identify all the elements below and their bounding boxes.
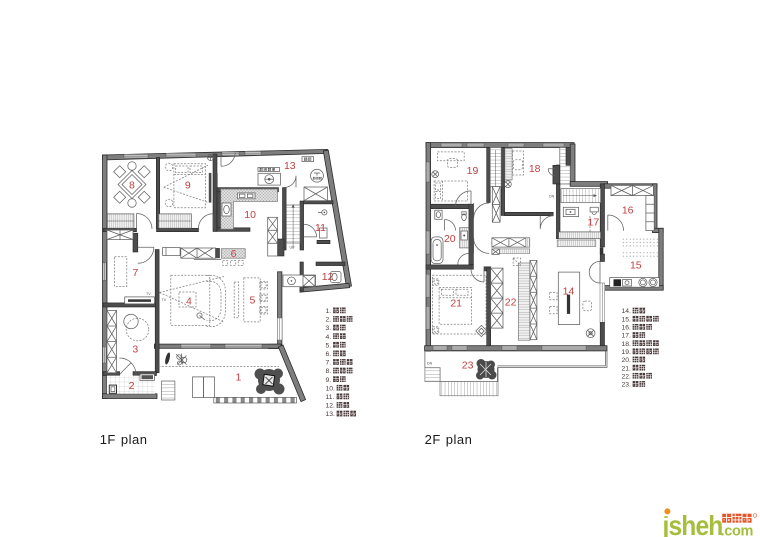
svg-text:UP: UP	[290, 246, 296, 250]
svg-text:12: 12	[322, 271, 334, 283]
svg-text:TV: TV	[146, 292, 151, 296]
svg-text:11.: 11.	[326, 394, 335, 401]
svg-text:19.: 19.	[622, 349, 632, 356]
svg-text:15.: 15.	[622, 316, 632, 323]
svg-text:6: 6	[231, 248, 237, 260]
svg-text:9: 9	[185, 180, 191, 192]
svg-text:11: 11	[315, 222, 326, 234]
svg-text:DN: DN	[427, 362, 433, 366]
svg-text:7.: 7.	[326, 360, 332, 367]
svg-text:22.: 22.	[622, 373, 632, 380]
svg-text:10: 10	[244, 209, 256, 221]
svg-text:6.: 6.	[326, 351, 332, 358]
svg-text:19: 19	[467, 165, 479, 177]
svg-text:18.: 18.	[622, 341, 632, 348]
svg-text:5.: 5.	[326, 342, 332, 349]
svg-text:1Fplan: 1Fplan	[100, 432, 148, 447]
svg-text:17: 17	[588, 217, 600, 229]
svg-text:1.: 1.	[326, 308, 332, 315]
svg-text:13.: 13.	[326, 411, 336, 418]
svg-text:16: 16	[622, 204, 634, 216]
svg-text:20: 20	[444, 233, 456, 245]
svg-text:10.: 10.	[326, 385, 336, 392]
svg-text:12.: 12.	[326, 403, 336, 410]
svg-text:8: 8	[129, 180, 135, 192]
svg-text:3.: 3.	[326, 325, 332, 332]
svg-text:15: 15	[630, 259, 642, 271]
svg-text:13: 13	[284, 160, 296, 172]
svg-text:20.: 20.	[622, 357, 632, 364]
svg-text:16.: 16.	[622, 325, 632, 332]
svg-text:21.: 21.	[622, 365, 632, 372]
svg-text:2: 2	[129, 380, 135, 392]
svg-text:2Fplan: 2Fplan	[425, 432, 473, 447]
svg-text:18: 18	[529, 163, 541, 175]
svg-text:5: 5	[249, 295, 255, 307]
svg-text:.com: .com	[721, 524, 754, 537]
svg-text:23.: 23.	[622, 382, 632, 389]
svg-text:14: 14	[563, 286, 575, 298]
svg-text:9.: 9.	[326, 377, 332, 384]
svg-text:2.: 2.	[326, 317, 332, 324]
svg-text:4: 4	[186, 296, 192, 308]
svg-text:17.: 17.	[622, 333, 632, 340]
svg-text:1: 1	[235, 371, 241, 383]
svg-text:3: 3	[132, 344, 138, 356]
svg-text:DN: DN	[549, 195, 555, 199]
svg-text:14.: 14.	[622, 308, 632, 315]
svg-text:7: 7	[132, 267, 138, 279]
svg-text:21: 21	[450, 297, 462, 309]
svg-text:8.: 8.	[326, 368, 332, 375]
svg-text:23: 23	[462, 360, 474, 372]
svg-text:TV: TV	[162, 298, 167, 302]
svg-text:4.: 4.	[326, 334, 332, 341]
svg-text:22: 22	[505, 297, 517, 309]
